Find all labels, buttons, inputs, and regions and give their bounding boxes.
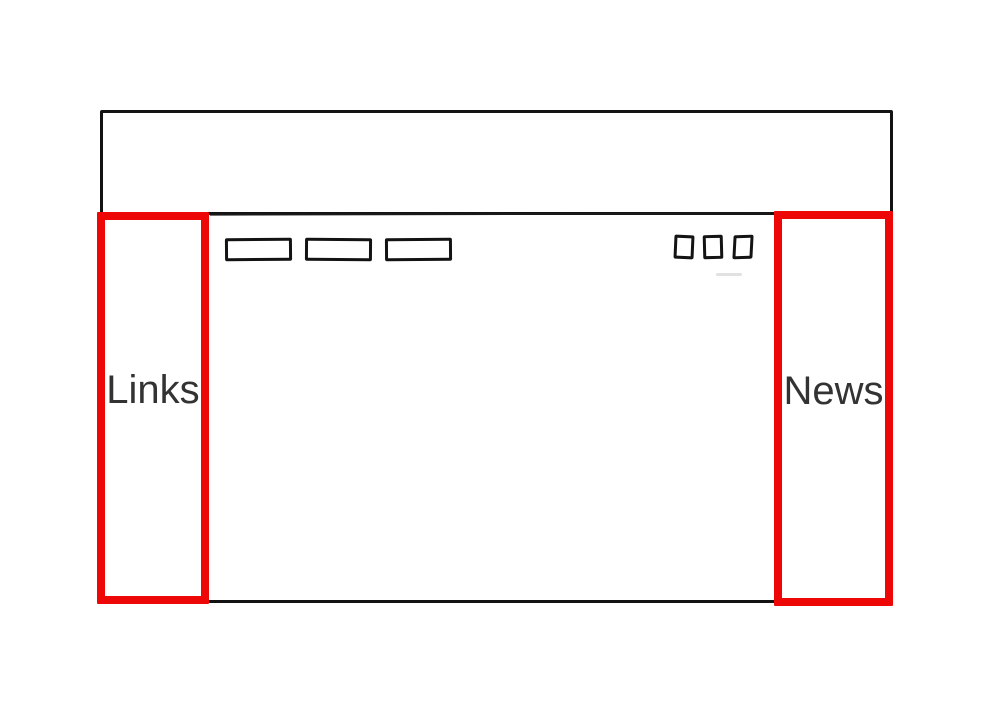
- nav-button-placeholder-1: [225, 238, 292, 262]
- header-box: [100, 110, 893, 215]
- content-top-line: [210, 212, 770, 215]
- nav-button-placeholder-3: [385, 238, 452, 261]
- links-label: Links: [106, 370, 199, 410]
- icon-square-placeholder-2: [703, 235, 724, 260]
- icon-square-placeholder-3: [732, 235, 753, 260]
- links-sidebar-annotation: Links: [97, 212, 209, 604]
- faint-smudge: [716, 273, 742, 276]
- wireframe-canvas: Links News: [0, 0, 1000, 713]
- content-bottom-line: [205, 600, 777, 603]
- news-sidebar-annotation: News: [774, 211, 893, 606]
- nav-button-placeholder-2: [305, 238, 372, 261]
- news-label: News: [783, 371, 883, 411]
- icon-square-placeholder-1: [673, 235, 694, 260]
